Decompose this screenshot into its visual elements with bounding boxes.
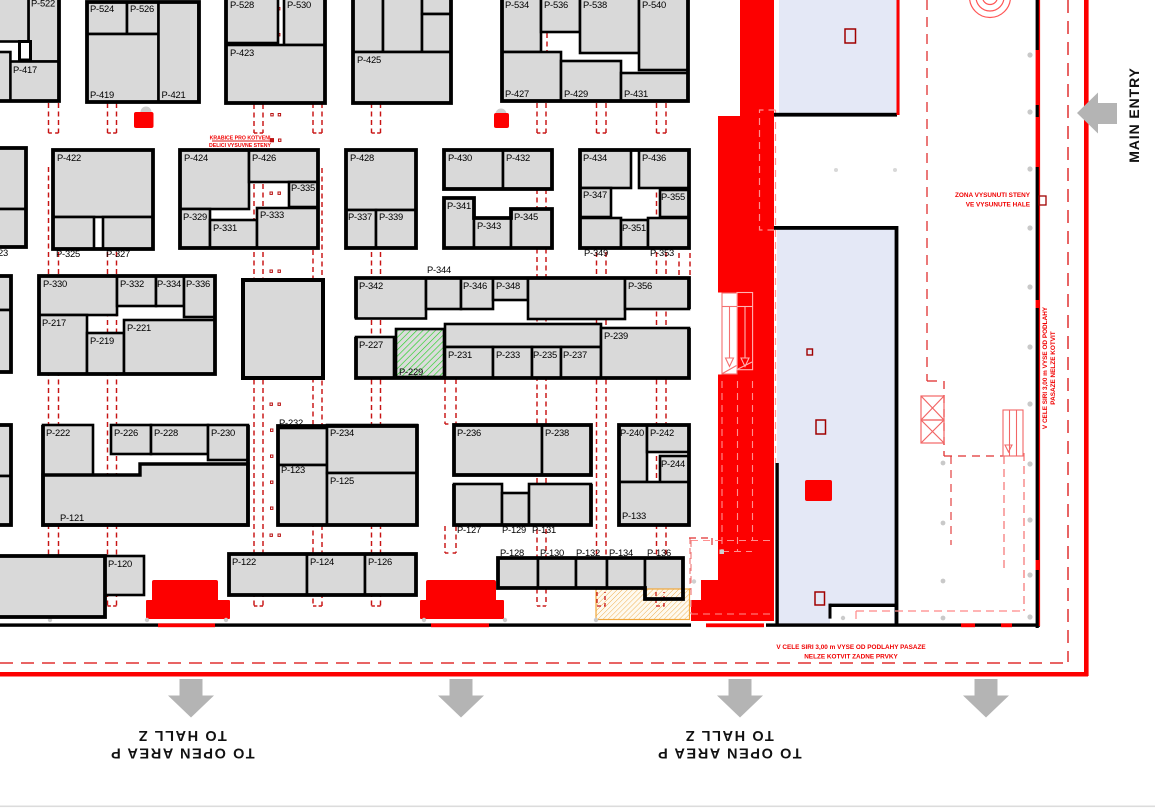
svg-text:MAIN ENTRY: MAIN ENTRY [1126, 67, 1142, 163]
svg-text:V CELE SIRI 3,00 m VYSE OD POD: V CELE SIRI 3,00 m VYSE OD PODLAHY [1042, 306, 1049, 429]
svg-text:P-329: P-329 [183, 211, 207, 222]
svg-text:P-530: P-530 [287, 0, 311, 10]
svg-text:KRABICE PRO KOTVENI: KRABICE PRO KOTVENI [210, 135, 271, 141]
svg-text:P-524: P-524 [90, 3, 114, 14]
svg-text:P-222: P-222 [46, 427, 70, 438]
svg-text:P-229: P-229 [399, 366, 423, 377]
svg-text:P-341: P-341 [447, 200, 471, 211]
svg-text:P-237: P-237 [563, 349, 587, 360]
svg-text:P-334: P-334 [157, 278, 181, 289]
svg-text:P-221: P-221 [127, 322, 151, 333]
svg-text:TO OPEN AREA P: TO OPEN AREA P [656, 745, 801, 761]
svg-text:P-219: P-219 [90, 335, 114, 346]
svg-text:P-526: P-526 [130, 3, 154, 14]
svg-text:P-332: P-332 [120, 278, 144, 289]
svg-text:P-226: P-226 [114, 427, 138, 438]
svg-text:P-534: P-534 [505, 0, 529, 10]
svg-text:P-337: P-337 [348, 211, 372, 222]
svg-text:P-422: P-422 [57, 152, 81, 163]
svg-text:P-343: P-343 [477, 220, 501, 231]
svg-text:NELZE KOTVIT ZADNE PRVKY: NELZE KOTVIT ZADNE PRVKY [804, 654, 898, 661]
svg-text:P-426: P-426 [252, 152, 276, 163]
svg-text:P-236: P-236 [457, 427, 481, 438]
svg-text:TO OPEN AREA P: TO OPEN AREA P [109, 745, 254, 761]
svg-text:P-344: P-344 [427, 264, 451, 275]
svg-text:P-230: P-230 [211, 427, 235, 438]
svg-text:P-522: P-522 [31, 0, 55, 9]
svg-text:P-228: P-228 [154, 427, 178, 438]
svg-text:P-417: P-417 [13, 64, 37, 75]
svg-text:ZONA VYSUNUTI STENY: ZONA VYSUNUTI STENY [955, 192, 1031, 199]
svg-text:P-238: P-238 [545, 427, 569, 438]
svg-text:P-356: P-356 [628, 280, 652, 291]
svg-text:P-347: P-347 [583, 189, 607, 200]
svg-text:P-425: P-425 [357, 54, 381, 65]
svg-text:P-235: P-235 [533, 349, 557, 360]
svg-text:P-123: P-123 [281, 464, 305, 475]
svg-text:P-536: P-536 [544, 0, 568, 10]
svg-text:P-122: P-122 [232, 556, 256, 567]
svg-text:P-331: P-331 [213, 222, 237, 233]
svg-text:P-233: P-233 [496, 349, 520, 360]
svg-text:P-234: P-234 [330, 427, 354, 438]
svg-text:P-528: P-528 [230, 0, 254, 10]
svg-text:TO HALL Z: TO HALL Z [137, 727, 227, 743]
svg-text:P-419: P-419 [90, 89, 114, 100]
svg-text:P-227: P-227 [359, 339, 383, 350]
svg-text:P-239: P-239 [604, 330, 628, 341]
svg-text:P-217: P-217 [42, 317, 66, 328]
svg-text:VE VYSUNUTE HALE: VE VYSUNUTE HALE [966, 202, 1031, 209]
svg-text:P-348: P-348 [496, 280, 520, 291]
svg-text:P-330: P-330 [43, 278, 67, 289]
svg-text:P-434: P-434 [583, 152, 607, 163]
svg-text:P-423: P-423 [230, 47, 254, 58]
svg-text:P-432: P-432 [506, 152, 530, 163]
svg-text:P-126: P-126 [368, 556, 392, 567]
svg-text:P-424: P-424 [184, 152, 208, 163]
svg-text:P-429: P-429 [564, 88, 588, 99]
svg-text:P-133: P-133 [622, 510, 646, 521]
svg-text:P-244: P-244 [661, 458, 685, 469]
svg-text:P-427: P-427 [505, 88, 529, 99]
svg-text:P-430: P-430 [448, 152, 472, 163]
svg-text:P-345: P-345 [514, 211, 538, 222]
svg-text:P-120: P-120 [108, 558, 132, 569]
svg-text:TO HALL Z: TO HALL Z [684, 727, 774, 743]
svg-text:P-240: P-240 [620, 427, 644, 438]
svg-text:P-351: P-351 [622, 222, 646, 233]
svg-text:P-421: P-421 [162, 89, 186, 100]
svg-text:P-428: P-428 [350, 152, 374, 163]
svg-text:P-346: P-346 [463, 280, 487, 291]
svg-text:P-124: P-124 [310, 556, 334, 567]
svg-text:P-436: P-436 [642, 152, 666, 163]
svg-text:PASAZE NELZE KOTVIT: PASAZE NELZE KOTVIT [1050, 331, 1057, 404]
svg-text:P-242: P-242 [650, 427, 674, 438]
svg-text:P-121: P-121 [60, 512, 84, 523]
svg-text:V CELE SIRI 3,00 m VYSE OD POD: V CELE SIRI 3,00 m VYSE OD PODLAHY PASAZ… [776, 644, 926, 651]
svg-text:P-339: P-339 [379, 211, 403, 222]
svg-text:P-336: P-336 [186, 278, 210, 289]
svg-text:P-342: P-342 [359, 280, 383, 291]
svg-text:P-538: P-538 [583, 0, 607, 10]
svg-text:P-125: P-125 [330, 475, 354, 486]
svg-text:P-333: P-333 [260, 209, 284, 220]
svg-text:P-335: P-335 [291, 182, 315, 193]
svg-text:P-355: P-355 [661, 191, 685, 202]
svg-text:P-431: P-431 [624, 88, 648, 99]
svg-text:P-231: P-231 [448, 349, 472, 360]
svg-text:P-540: P-540 [642, 0, 666, 10]
